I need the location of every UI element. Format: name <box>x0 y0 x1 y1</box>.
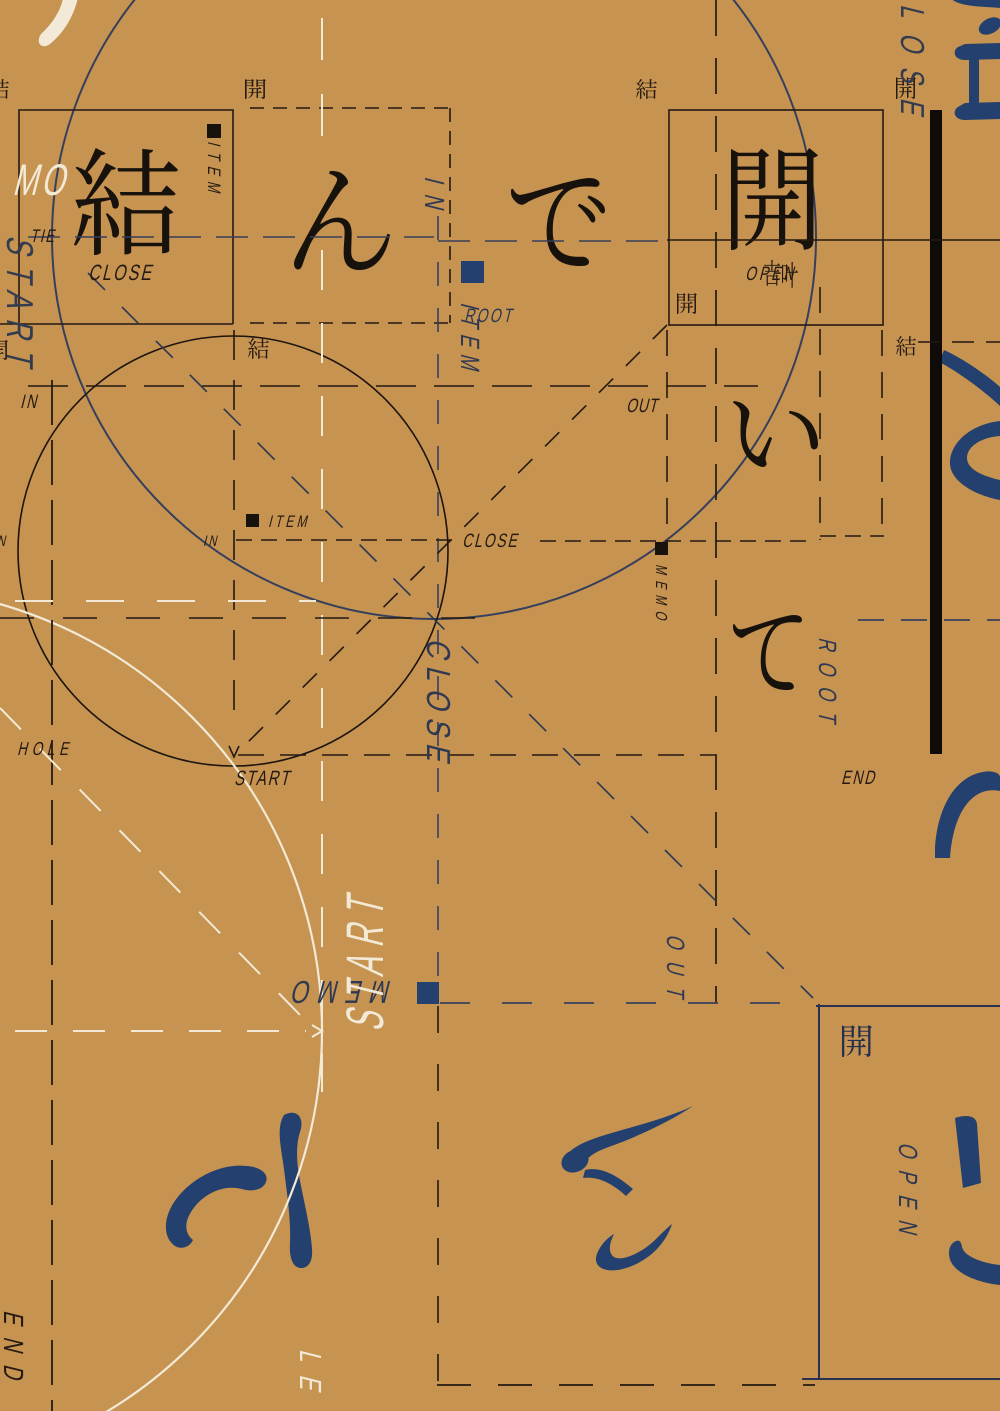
svg-text:LOSE: LOSE <box>893 2 930 136</box>
svg-text:ITEM: ITEM <box>204 140 224 202</box>
svg-text:HOLE: HOLE <box>16 738 77 759</box>
svg-text:IN: IN <box>418 174 448 225</box>
svg-text:CLOSE: CLOSE <box>419 636 457 776</box>
svg-text:END: END <box>840 766 880 788</box>
svg-text:START: START <box>337 879 395 1035</box>
svg-text:MEMO: MEMO <box>652 563 670 629</box>
svg-text:OUT: OUT <box>625 394 662 416</box>
svg-text:OPEN: OPEN <box>744 262 801 284</box>
svg-text:ITEM: ITEM <box>267 514 313 532</box>
svg-text:START: START <box>0 233 40 383</box>
svg-text:CLOSE: CLOSE <box>461 529 523 551</box>
svg-text:START: START <box>233 766 296 790</box>
svg-text:ROOT: ROOT <box>813 636 841 738</box>
svg-text:LE: LE <box>293 1347 328 1409</box>
svg-text:ITEM: ITEM <box>455 301 484 382</box>
svg-text:END: END <box>0 1308 28 1397</box>
svg-text:OPEN: OPEN <box>893 1141 922 1251</box>
svg-text:OUT: OUT <box>661 933 689 1015</box>
svg-text:CLOSE: CLOSE <box>87 261 158 286</box>
